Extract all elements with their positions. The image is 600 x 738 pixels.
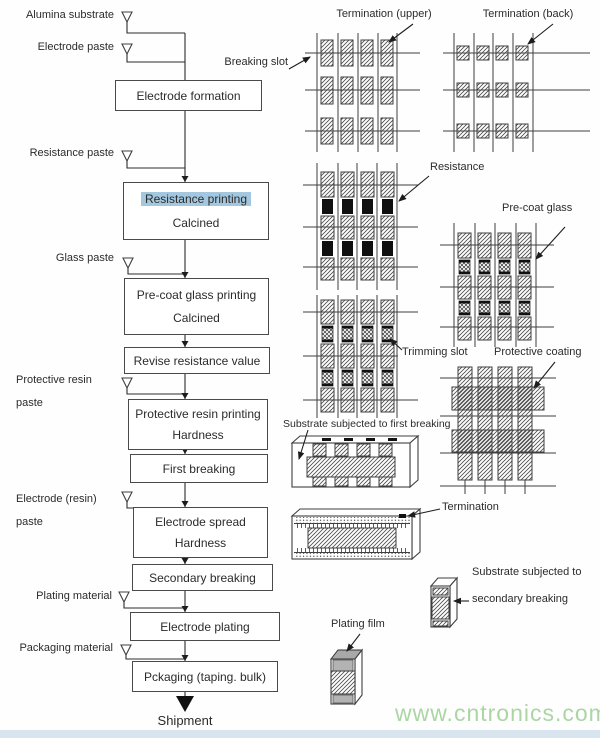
- grid-trimmed-resistors: [303, 295, 418, 418]
- box-resistance-printing: Resistance printing Calcined: [123, 182, 269, 240]
- bar-termination: [292, 509, 420, 559]
- input-protective-resin-paste: Protective resin paste: [16, 369, 116, 415]
- input-resistance-paste: Resistance paste: [0, 147, 114, 160]
- termination-back-arrow: [528, 24, 553, 44]
- box-secondary-breaking-label: Secondary breaking: [149, 571, 256, 585]
- box-electrode-plating: Electrode plating: [130, 612, 280, 641]
- box-precoat-glass-printing-label: Pre-coat glass printing: [137, 288, 256, 302]
- box-first-breaking: First breaking: [130, 454, 268, 483]
- process-flow-diagram: .h{fill:url(#ht);stroke:#3f3f3f;stroke-w…: [0, 0, 600, 738]
- box-packaging: Pckaging (taping. bulk): [132, 661, 278, 692]
- box-first-breaking-label: First breaking: [163, 462, 236, 476]
- funnel-protective-resin: [122, 378, 185, 394]
- box-electrode-formation-label: Electrode formation: [136, 89, 240, 103]
- box-resistance-printing-sub: Calcined: [173, 216, 220, 230]
- label-resistance: Resistance: [430, 161, 484, 174]
- label-termination: Termination: [442, 501, 499, 514]
- grid-termination-back: [443, 33, 590, 152]
- chip-plating-film: [331, 650, 362, 704]
- label-substrate-secondary-line2: secondary breaking: [472, 593, 568, 606]
- label-termination-upper: Termination (upper): [328, 8, 440, 21]
- breaking-slot-arrow: [289, 57, 310, 69]
- box-protective-resin-printing-sub: Hardness: [172, 428, 223, 442]
- funnel-glass-paste: [123, 258, 185, 274]
- funnel-alumina: [122, 12, 185, 33]
- plating-film-arrow: [347, 634, 360, 651]
- grid-precoat-glass: [440, 223, 554, 347]
- label-protective-coating: Protective coating: [494, 346, 581, 359]
- chip-secondary-breaking: [431, 578, 457, 627]
- watermark: www.cntronics.com: [395, 700, 590, 727]
- grid-resistance-printed: [303, 163, 418, 290]
- input-alumina-substrate: Alumina substrate: [0, 9, 114, 22]
- box-packaging-label: Pckaging (taping. bulk): [144, 670, 266, 684]
- precoat-glass-arrow: [536, 227, 565, 259]
- termination-upper-arrow: [389, 24, 413, 42]
- bar-first-breaking: [292, 436, 418, 487]
- box-protective-resin-printing: Protective resin printing Hardness: [128, 399, 268, 450]
- shipment-arrow: [176, 696, 194, 712]
- grid-protective-coating: [440, 367, 556, 494]
- input-electrode-paste: Electrode paste: [0, 41, 114, 54]
- input-electrode-resin-paste: Electrode (resin) paste: [16, 488, 126, 534]
- input-packaging-material: Packaging material: [0, 642, 113, 655]
- label-termination-back: Termination (back): [472, 8, 584, 21]
- label-breaking-slot: Breaking slot: [214, 56, 288, 69]
- label-precoat-glass: Pre-coat glass: [502, 202, 572, 215]
- box-revise-resistance: Revise resistance value: [124, 347, 270, 374]
- box-electrode-plating-label: Electrode plating: [160, 620, 249, 634]
- input-glass-paste: Glass paste: [0, 252, 114, 265]
- box-electrode-spread: Electrode spread Hardness: [133, 507, 268, 558]
- funnel-electrode-resin: [122, 492, 185, 508]
- box-precoat-glass-printing: Pre-coat glass printing Calcined: [124, 278, 269, 335]
- label-plating-film: Plating film: [331, 618, 385, 631]
- box-precoat-glass-printing-sub: Calcined: [173, 311, 220, 325]
- label-trimming-slot: Trimming slot: [402, 346, 468, 359]
- box-resistance-printing-label: Resistance printing: [141, 192, 251, 206]
- funnel-electrode-paste: [122, 44, 185, 62]
- funnel-packaging-material: [121, 645, 185, 659]
- funnel-plating-material: [119, 592, 185, 608]
- box-revise-resistance-label: Revise resistance value: [134, 354, 261, 368]
- label-substrate-secondary-line1: Substrate subjected to: [472, 566, 581, 579]
- box-secondary-breaking: Secondary breaking: [132, 564, 273, 591]
- box-electrode-formation: Electrode formation: [115, 80, 262, 111]
- protective-coating-arrow: [534, 362, 555, 388]
- box-electrode-spread-label: Electrode spread: [155, 515, 246, 529]
- funnel-resistance-paste: [122, 151, 185, 168]
- label-substrate-first-breaking: Substrate subjected to first breaking: [283, 418, 451, 431]
- box-protective-resin-printing-label: Protective resin printing: [135, 407, 260, 421]
- resistance-arrow: [399, 176, 429, 201]
- bottom-strip: [0, 730, 600, 738]
- grid-termination-upper: [305, 33, 420, 152]
- box-electrode-spread-sub: Hardness: [175, 536, 226, 550]
- input-plating-material: Plating material: [0, 590, 112, 603]
- label-shipment: Shipment: [145, 714, 225, 727]
